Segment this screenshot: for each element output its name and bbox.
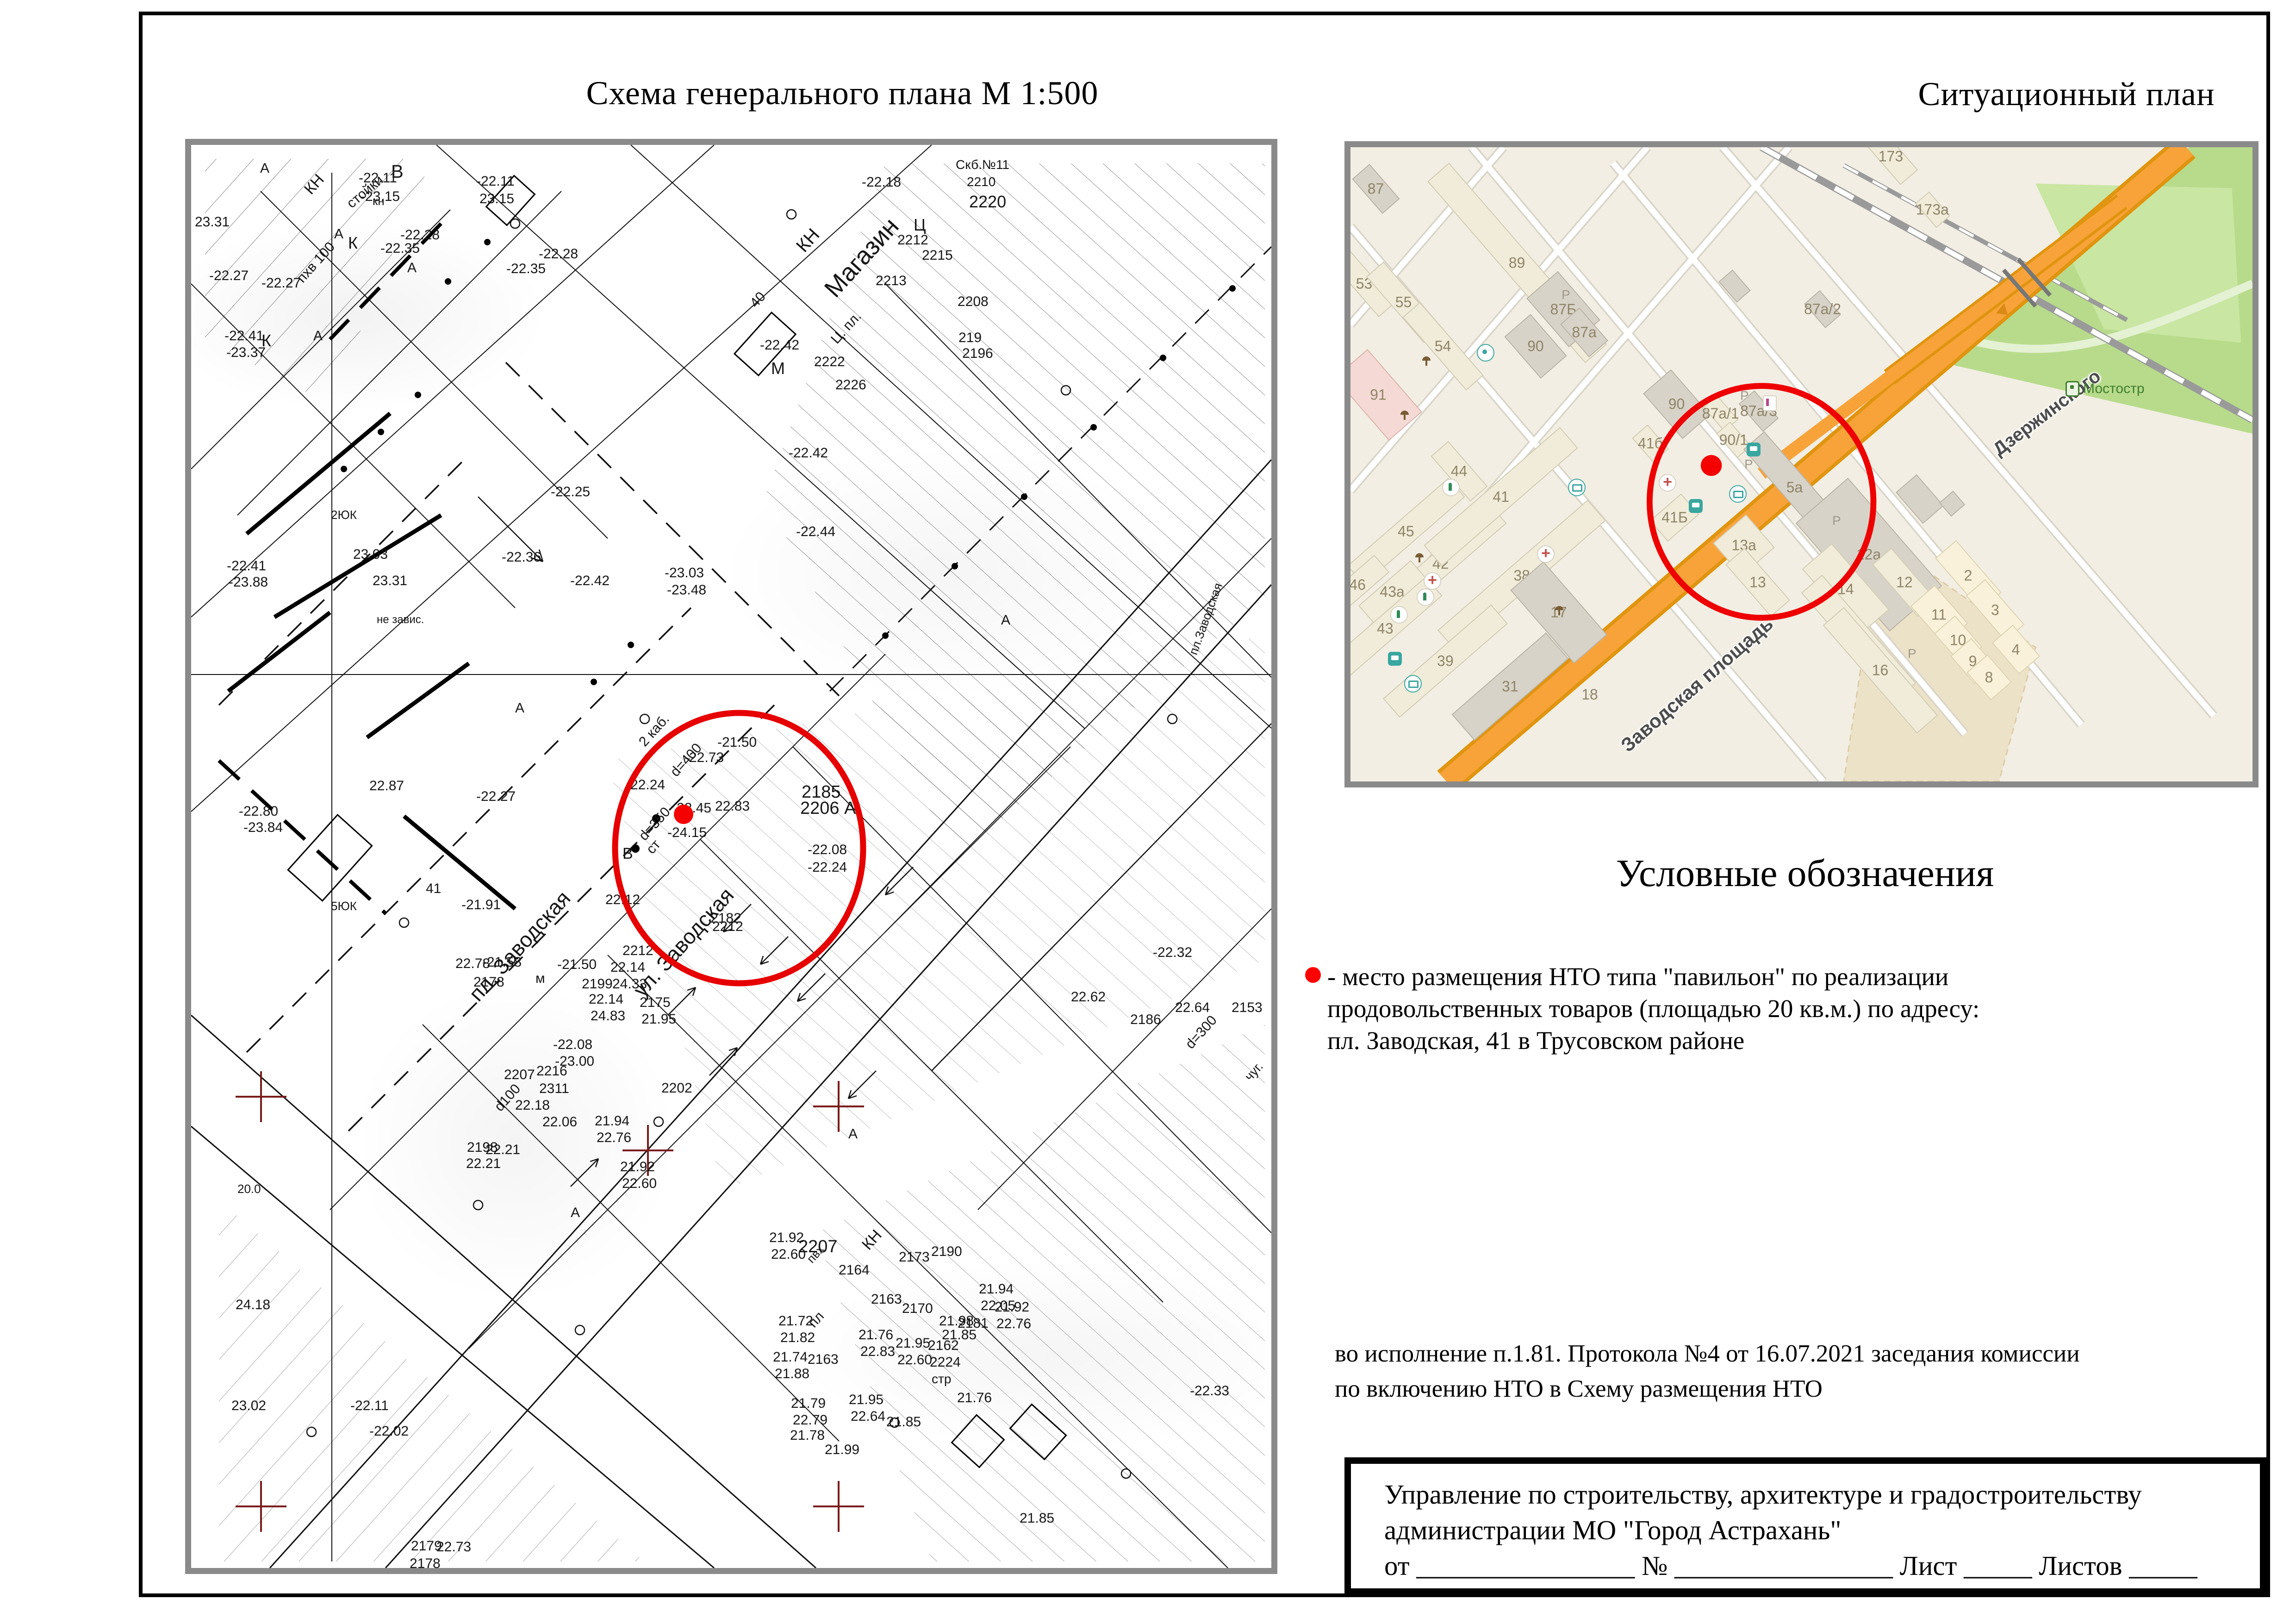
genplan-title: Схема генерального плана М 1:500 bbox=[586, 74, 1099, 112]
stamp-box: Управление по строительству, архитектуре… bbox=[1344, 1457, 2266, 1595]
site-circle bbox=[615, 713, 863, 983]
sitplan-map: 87 89 53 55 54 91 90 87Б 87а bbox=[1350, 147, 2252, 781]
sitplan-title: Ситуационный план bbox=[1918, 75, 2215, 113]
legend-line: - место размещения НТО типа "павильон" п… bbox=[1327, 961, 1979, 993]
legend-item: - место размещения НТО типа "павильон" п… bbox=[1305, 961, 1979, 1056]
nto-location-dot-icon bbox=[1305, 967, 1321, 983]
sitplan-map-frame: 87 89 53 55 54 91 90 87Б 87а bbox=[1344, 141, 2259, 787]
protocol-line: во исполнение п.1.81. Протокола №4 от 16… bbox=[1335, 1336, 2080, 1371]
site-dot bbox=[1701, 455, 1722, 476]
legend-line: пл. Заводская, 41 в Трусовском районе bbox=[1327, 1024, 1979, 1056]
stamp-org-line: администрации МО "Город Астрахань" bbox=[1384, 1512, 2260, 1548]
legend-text: - место размещения НТО типа "павильон" п… bbox=[1327, 961, 1979, 1056]
legend-heading: Условные обозначения bbox=[1616, 851, 1994, 896]
site-dot bbox=[674, 805, 693, 824]
genplan-site-marker bbox=[191, 145, 1271, 1568]
legend-line: продовольственных товаров (площадью 20 к… bbox=[1327, 993, 1979, 1024]
plan-sheet: Схема генерального плана М 1:500 Ситуаци… bbox=[0, 0, 2296, 1624]
stamp-org-line: Управление по строительству, архитектуре… bbox=[1384, 1477, 2260, 1512]
stamp-fields-line: от ________________ № ________________ Л… bbox=[1384, 1548, 2260, 1584]
site-circle bbox=[1649, 386, 1873, 618]
protocol-note: во исполнение п.1.81. Протокола №4 от 16… bbox=[1335, 1336, 2080, 1406]
sitplan-site-marker bbox=[1350, 147, 2252, 781]
genplan-map: -22.11-23.15стойкикнКНВ-22.28-22.35-22.2… bbox=[191, 145, 1271, 1568]
protocol-line: по включению НТО в Схему размещения НТО bbox=[1335, 1371, 2080, 1406]
genplan-map-frame: -22.11-23.15стойкикнКНВ-22.28-22.35-22.2… bbox=[185, 139, 1277, 1574]
